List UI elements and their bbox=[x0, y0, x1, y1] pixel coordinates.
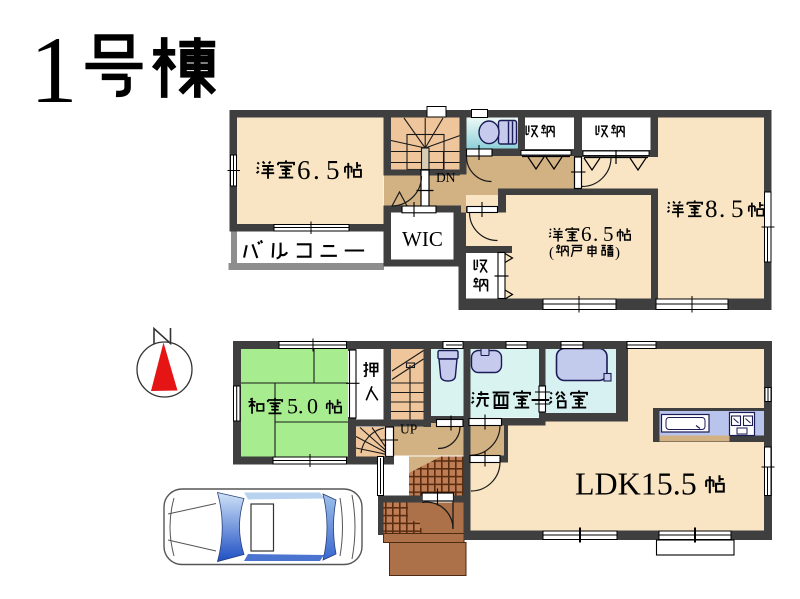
svg-text:5: 5 bbox=[326, 155, 340, 185]
svg-text:.: . bbox=[298, 394, 304, 419]
svg-text:5: 5 bbox=[603, 222, 614, 246]
svg-text:6: 6 bbox=[297, 155, 311, 185]
svg-text:5: 5 bbox=[287, 394, 298, 419]
svg-text:): ) bbox=[615, 245, 620, 261]
svg-text:6: 6 bbox=[581, 222, 592, 246]
svg-text:UP: UP bbox=[400, 422, 417, 437]
svg-text:(: ( bbox=[549, 245, 554, 261]
svg-text:LDK15.5: LDK15.5 bbox=[575, 466, 697, 502]
svg-text:WIC: WIC bbox=[402, 227, 443, 251]
svg-text:8: 8 bbox=[705, 196, 718, 223]
svg-text:5: 5 bbox=[731, 196, 744, 223]
svg-text:.: . bbox=[593, 222, 598, 246]
svg-text:.: . bbox=[313, 155, 320, 185]
svg-text:0: 0 bbox=[307, 394, 318, 419]
svg-text:.: . bbox=[719, 196, 725, 223]
svg-text:1: 1 bbox=[30, 17, 78, 123]
svg-text:DN: DN bbox=[436, 170, 456, 185]
